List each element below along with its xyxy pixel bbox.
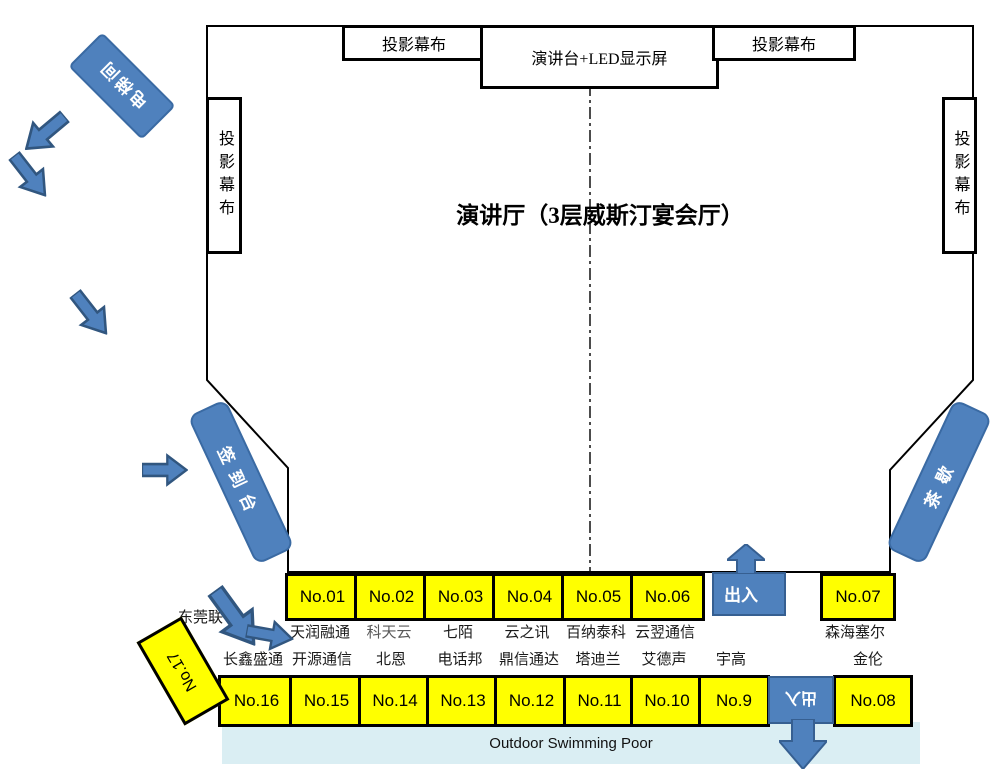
booth-label: No.06: [645, 587, 690, 607]
projection-screen-left-wall: 投影幕布: [206, 97, 242, 254]
gate-bottom-box: 出入: [768, 676, 834, 724]
booth-label: No.10: [644, 691, 689, 711]
booth-no06: No.06: [630, 573, 705, 621]
booth-no15: No.15: [289, 675, 364, 727]
booth-label: No.07: [835, 587, 880, 607]
screen-label: 投影幕布: [752, 31, 816, 55]
booth-no02: No.02: [354, 573, 429, 621]
gate-top-up-arrow-icon: [727, 544, 765, 574]
company-yugao: 宇高: [683, 648, 779, 669]
booth-label: No.11: [577, 691, 621, 711]
booth-label: No.16: [234, 691, 279, 711]
pool-label: Outdoor Swimming Poor: [489, 735, 652, 752]
booth-label: No.01: [300, 587, 345, 607]
booth-no16: No.16: [218, 675, 295, 727]
booth-no11: No.11: [563, 675, 636, 727]
booth-label: No.02: [369, 587, 414, 607]
gate-top-box: 出入: [712, 572, 786, 616]
podium-label: 演讲台+LED显示屏: [531, 45, 667, 69]
signin-arrow-icon: [142, 453, 188, 487]
booth-label: No.12: [509, 691, 554, 711]
booth-no13: No.13: [426, 675, 500, 727]
podium-led-box: 演讲台+LED显示屏: [480, 25, 719, 89]
booth-label: No.13: [440, 691, 485, 711]
booth-label: No.9: [716, 691, 752, 711]
booth-label: No.04: [507, 587, 552, 607]
booth-label: No.08: [850, 691, 895, 711]
booth-label: No.15: [304, 691, 349, 711]
booth-no10: No.10: [630, 675, 704, 727]
screen-label: 投影幕布: [948, 130, 972, 222]
booth-no01: No.01: [285, 573, 360, 621]
hall-title: 演讲厅（3层威斯汀宴会厅）: [300, 196, 900, 230]
projection-screen-top-left: 投影幕布: [342, 25, 486, 61]
booth-label: No.05: [576, 587, 621, 607]
booth-no05: No.05: [561, 573, 636, 621]
booth-no12: No.12: [494, 675, 569, 727]
booth-label: No.03: [438, 587, 483, 607]
company-senhaisaier: 森海塞尔: [807, 621, 903, 642]
booth-label: No.17: [165, 648, 202, 694]
booth-no08: No.08: [833, 675, 913, 727]
projection-screen-top-right: 投影幕布: [712, 25, 856, 61]
screen-label: 投影幕布: [212, 130, 236, 222]
booth-no9: No.9: [698, 675, 770, 727]
booth-label: No.14: [372, 691, 417, 711]
gate-bottom-down-arrow-icon: [779, 719, 827, 769]
gate-bottom-label: 出入: [785, 688, 817, 712]
booth-no03: No.03: [423, 573, 498, 621]
projection-screen-right-wall: 投影幕布: [942, 97, 977, 254]
company-jinlun: 金伦: [820, 648, 916, 669]
booth-no07: No.07: [820, 573, 896, 621]
booth-no04: No.04: [492, 573, 567, 621]
floor-plan: Outdoor Swimming Poor 演讲厅（3层威斯汀宴会厅） 投影幕布…: [0, 0, 1000, 777]
screen-label: 投影幕布: [382, 31, 446, 55]
gate-top-label: 出入: [724, 581, 758, 606]
company-yunyitongxin: 云翌通信: [617, 621, 713, 642]
booth-no14: No.14: [358, 675, 432, 727]
